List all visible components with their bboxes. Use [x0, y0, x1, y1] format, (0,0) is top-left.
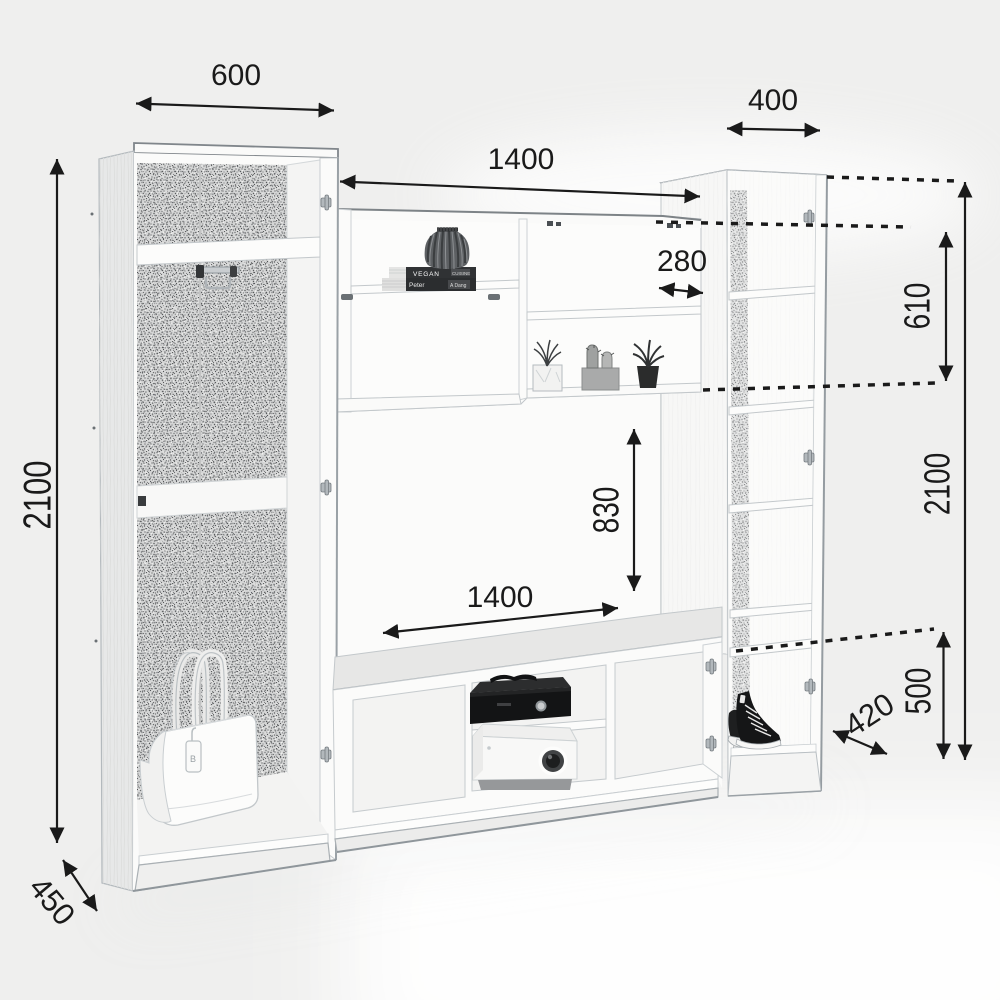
svg-text:2100: 2100 — [16, 461, 59, 530]
svg-text:1400: 1400 — [467, 581, 534, 614]
svg-text:400: 400 — [748, 84, 798, 117]
svg-text:Peter: Peter — [409, 282, 425, 289]
svg-text:A Dang: A Dang — [450, 283, 467, 289]
svg-text:280: 280 — [657, 245, 707, 278]
svg-text:500: 500 — [898, 668, 938, 715]
svg-text:1400: 1400 — [488, 143, 555, 176]
svg-text:VEGAN: VEGAN — [413, 271, 440, 278]
svg-text:CUISINE: CUISINE — [452, 271, 470, 276]
svg-text:2100: 2100 — [917, 453, 957, 515]
svg-text:600: 600 — [211, 59, 261, 92]
svg-text:830: 830 — [586, 487, 626, 534]
svg-text:B: B — [190, 754, 196, 764]
svg-text:610: 610 — [897, 283, 937, 330]
